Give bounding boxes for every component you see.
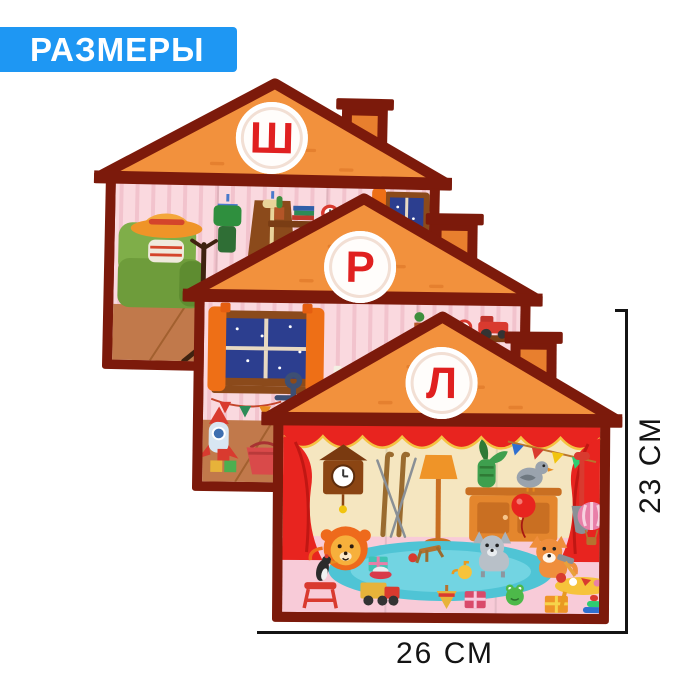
product-size-image: РАЗМЕРЫ: [0, 0, 700, 700]
frog-toy: [506, 584, 524, 605]
letter-l: Л: [426, 362, 457, 406]
letter-sh: Ш: [249, 117, 294, 162]
size-banner: РАЗМЕРЫ: [0, 27, 237, 72]
letter-badge-l: Л: [405, 347, 478, 420]
scarf: [148, 240, 184, 263]
ball: [556, 573, 566, 583]
width-dimension-line: [257, 631, 628, 634]
orange-curtain-left: [207, 306, 226, 391]
height-dimension-label: 23 СМ: [634, 416, 668, 514]
height-dimension-line: [625, 309, 628, 633]
letter-r: Р: [345, 246, 375, 290]
gift-box-red: [465, 591, 486, 608]
size-banner-label: РАЗМЕРЫ: [30, 31, 204, 69]
house-card-l: Л: [260, 308, 623, 631]
width-dimension-label: 26 СМ: [330, 637, 560, 671]
